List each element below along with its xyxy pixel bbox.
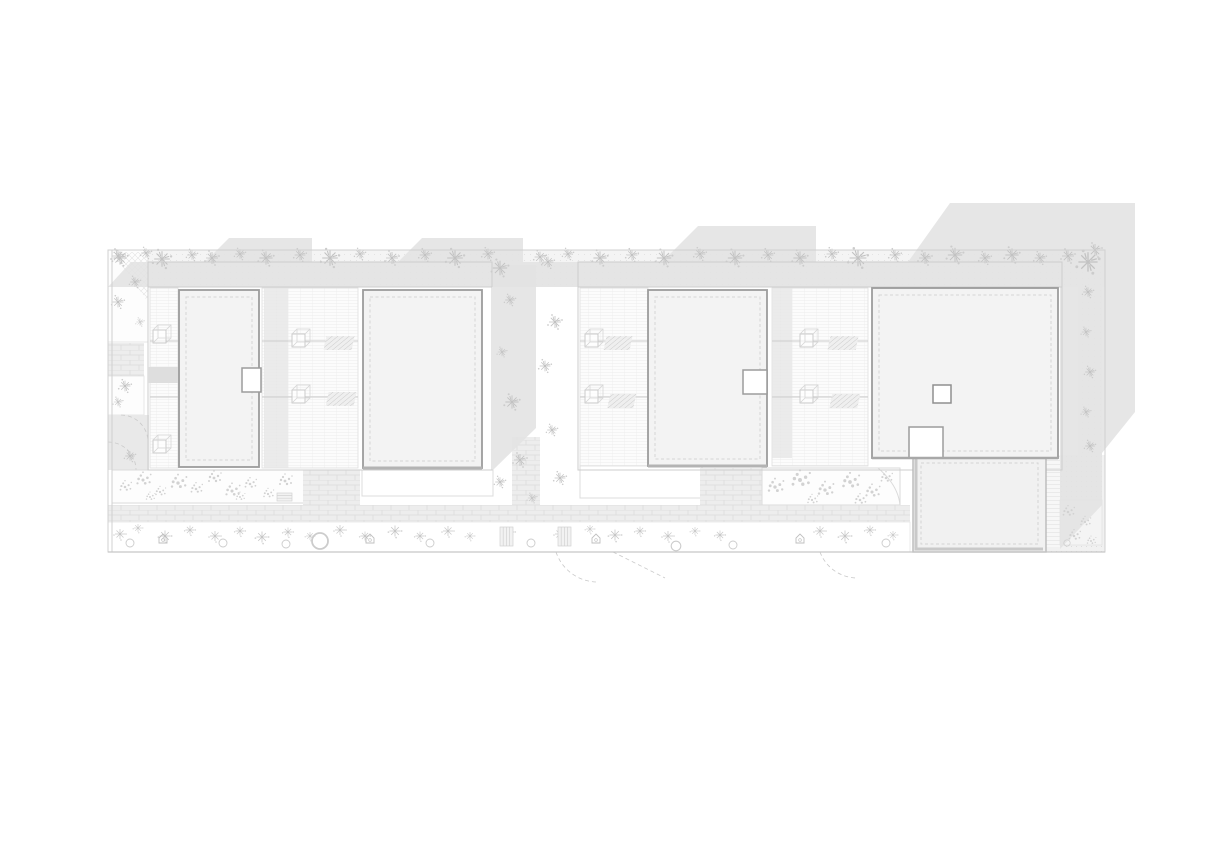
- stair-hatch-d2: [829, 394, 860, 408]
- trellis-b-shadow-strip: [264, 288, 288, 468]
- terrace-apron-west: [362, 470, 493, 496]
- roof-1-notch: [242, 368, 261, 392]
- stair-hatch-c1: [604, 336, 633, 350]
- brick-walkway: [108, 505, 910, 522]
- vegetation-mark: [500, 527, 513, 546]
- trellis-d-shadow-strip: [772, 288, 792, 458]
- bench-horizontal: [277, 493, 292, 501]
- stair-hatch-b1: [324, 336, 355, 350]
- dashed-diagonal: [613, 552, 665, 578]
- left-brick-patch: [108, 343, 144, 376]
- dashed-arc-bottom-2: [820, 552, 858, 578]
- east-ladder-strip: [1046, 455, 1060, 547]
- trellis-b: [262, 288, 358, 468]
- vegetation-mark: [546, 424, 559, 437]
- roof-4: [872, 288, 1058, 458]
- roof-4-notch: [909, 427, 943, 458]
- vegetation-mark: [553, 471, 567, 485]
- skylight: [933, 385, 951, 403]
- brick-patch-middle: [303, 470, 360, 505]
- roof-1: [179, 290, 261, 467]
- trellis-d: [772, 288, 868, 466]
- left-paved-court: [108, 415, 149, 470]
- vegetation-mark: [494, 476, 507, 489]
- annex-roof: [913, 455, 1046, 552]
- trellis-c: [580, 288, 648, 466]
- roof-3-notch: [743, 370, 767, 394]
- dashed-arc-bottom-1: [556, 552, 598, 582]
- trellis-a-canopy: [148, 367, 178, 383]
- roof-3: [648, 290, 767, 466]
- vegetation-mark: [558, 527, 571, 546]
- site-plan-drawing: [0, 0, 1221, 848]
- stair-hatch-b2: [326, 392, 357, 406]
- architectural-roof-plan: [0, 0, 1221, 848]
- vegetation-mark: [277, 493, 292, 501]
- roof-2: [363, 290, 482, 468]
- stair-hatch-c2: [607, 394, 636, 408]
- vegetation-mark: [538, 359, 552, 373]
- trellis-a: [148, 288, 178, 468]
- left-planting-patch: [108, 376, 144, 415]
- brick-path-east: [700, 468, 762, 505]
- stair-hatch-d1: [828, 336, 859, 350]
- roof-edge-shadow-band: [108, 262, 1060, 287]
- vegetation-mark: [547, 314, 563, 330]
